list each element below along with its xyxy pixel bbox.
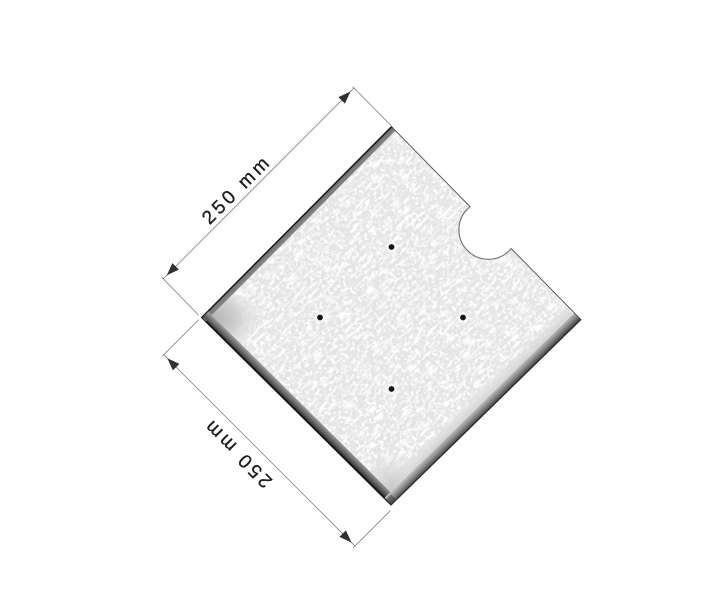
- svg-text:250 mm: 250 mm: [198, 151, 276, 229]
- svg-text:250 mm: 250 mm: [199, 414, 277, 492]
